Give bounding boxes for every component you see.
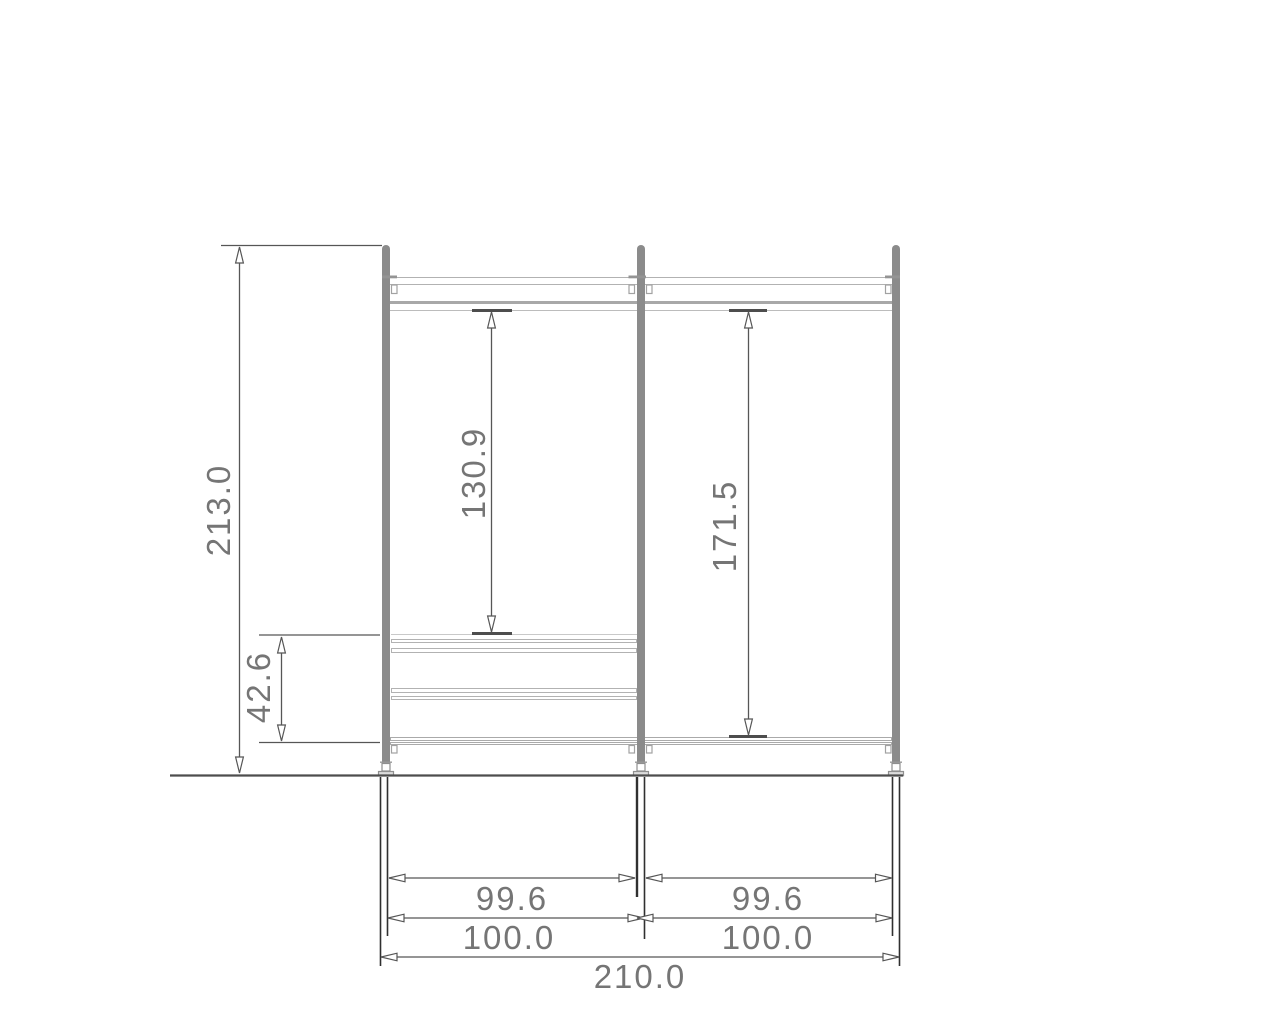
arrow-down-icon xyxy=(488,616,496,632)
arrow-right-icon xyxy=(619,874,635,882)
arrow-right-icon xyxy=(883,953,899,961)
arrow-left-icon xyxy=(646,874,662,882)
bracket-icon xyxy=(647,746,653,754)
dim-label-total-height: 213.0 xyxy=(201,450,237,570)
bracket-icon xyxy=(629,285,635,294)
bracket-icon xyxy=(886,746,892,754)
dim-label-right-bay-drop: 171.5 xyxy=(707,466,743,586)
arrow-left-icon xyxy=(389,874,405,882)
arrow-right-icon xyxy=(876,914,892,922)
dim-clear-widths xyxy=(389,874,892,882)
dim-label-shelf-zone: 42.6 xyxy=(241,627,277,747)
bracket-icon xyxy=(392,746,398,754)
bracket-icon xyxy=(886,285,892,294)
arrow-down-icon xyxy=(236,757,244,773)
foot-plate xyxy=(380,762,392,763)
bracket-icon xyxy=(647,285,653,294)
arrow-up-icon xyxy=(236,247,244,263)
dim-label-total-width: 210.0 xyxy=(560,960,720,994)
arrow-down-icon xyxy=(278,725,286,741)
arrow-left-icon xyxy=(388,914,404,922)
arrow-right-icon xyxy=(876,874,892,882)
rail-cap-right xyxy=(885,276,900,279)
dim-label-right-clear-width: 99.6 xyxy=(688,882,848,916)
foot-stem xyxy=(637,764,645,772)
rail-cap-left xyxy=(382,276,397,279)
dim-label-left-clear-width: 99.6 xyxy=(432,882,592,916)
arrow-down-icon xyxy=(745,719,753,735)
dim-label-left-bay-width: 100.0 xyxy=(429,921,589,955)
dimension-overlay xyxy=(0,0,1280,1024)
technical-drawing-canvas: 213.0 130.9 171.5 42.6 99.6 99.6 100.0 1… xyxy=(0,0,1280,1024)
foot-plate xyxy=(635,762,647,763)
arrow-up-icon xyxy=(278,637,286,653)
dim-label-left-bay-drop: 130.9 xyxy=(456,413,492,533)
arrow-up-icon xyxy=(745,312,753,328)
rail-cap-middle xyxy=(629,276,647,279)
dim-shelf-zone xyxy=(259,635,380,743)
post-feet xyxy=(379,762,904,776)
foot-stem xyxy=(382,764,390,772)
foot-plate xyxy=(890,762,902,763)
arrow-up-icon xyxy=(488,312,496,328)
rail-caps xyxy=(382,276,900,279)
arrow-left-icon xyxy=(381,953,397,961)
foot-stem xyxy=(892,764,900,772)
bracket-icon xyxy=(392,285,398,294)
dim-label-right-bay-width: 100.0 xyxy=(688,921,848,955)
bracket-icon xyxy=(629,746,635,754)
